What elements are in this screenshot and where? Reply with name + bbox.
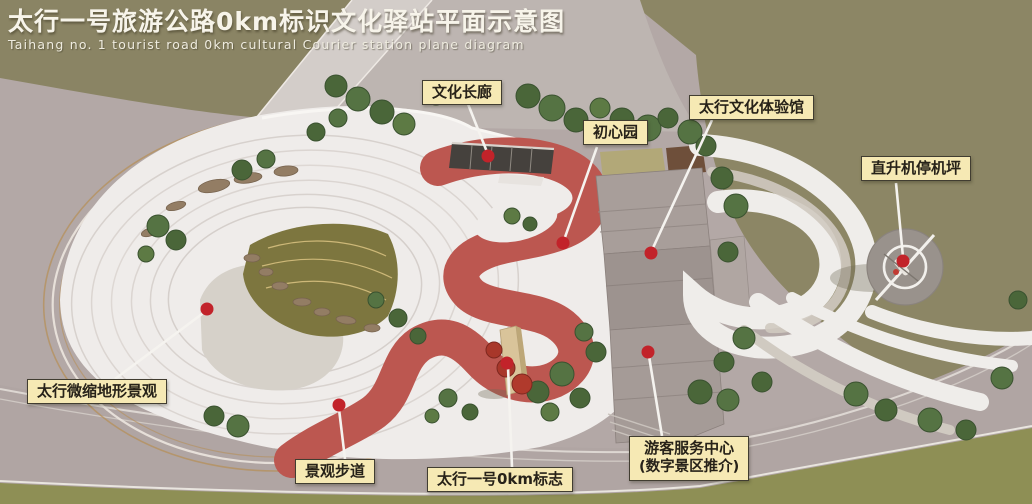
marker-miniature-terrain bbox=[201, 303, 214, 316]
label-culture-hall-text: 太行文化体验馆 bbox=[699, 98, 804, 116]
label-visitor-center: 游客服务中心 (数字景区推介) bbox=[629, 436, 749, 481]
marker-culture-hall bbox=[645, 247, 658, 260]
label-visitor-center-subtext: (数字景区推介) bbox=[639, 458, 739, 478]
label-culture-hall: 太行文化体验馆 bbox=[689, 95, 814, 120]
label-landscape-trail-text: 景观步道 bbox=[305, 462, 365, 480]
marker-chuxin-garden bbox=[557, 237, 570, 250]
marker-cultural-corridor bbox=[482, 150, 495, 163]
label-miniature-terrain-text: 太行微缩地形景观 bbox=[37, 382, 157, 400]
label-helipad-text: 直升机停机坪 bbox=[871, 159, 961, 177]
marker-visitor-center bbox=[642, 346, 655, 359]
marker-helipad bbox=[897, 255, 910, 268]
aerial-rendering bbox=[0, 0, 1032, 504]
label-visitor-center-text: 游客服务中心 bbox=[644, 439, 734, 457]
site-plan-screenshot: 太行一号旅游公路0km标识文化驿站平面示意图 Taihang no. 1 tou… bbox=[0, 0, 1032, 504]
label-zero-km-sign-text: 太行一号0km标志 bbox=[437, 470, 563, 488]
label-zero-km-sign: 太行一号0km标志 bbox=[427, 467, 573, 492]
label-miniature-terrain: 太行微缩地形景观 bbox=[27, 379, 167, 404]
label-chuxin-garden: 初心园 bbox=[583, 120, 648, 145]
label-chuxin-garden-text: 初心园 bbox=[593, 123, 638, 141]
marker-landscape-trail bbox=[333, 399, 346, 412]
marker-zero-km-sign bbox=[501, 357, 514, 370]
label-landscape-trail: 景观步道 bbox=[295, 459, 375, 484]
label-helipad: 直升机停机坪 bbox=[861, 156, 971, 181]
label-cultural-corridor-text: 文化长廊 bbox=[432, 83, 492, 101]
label-cultural-corridor: 文化长廊 bbox=[422, 80, 502, 105]
